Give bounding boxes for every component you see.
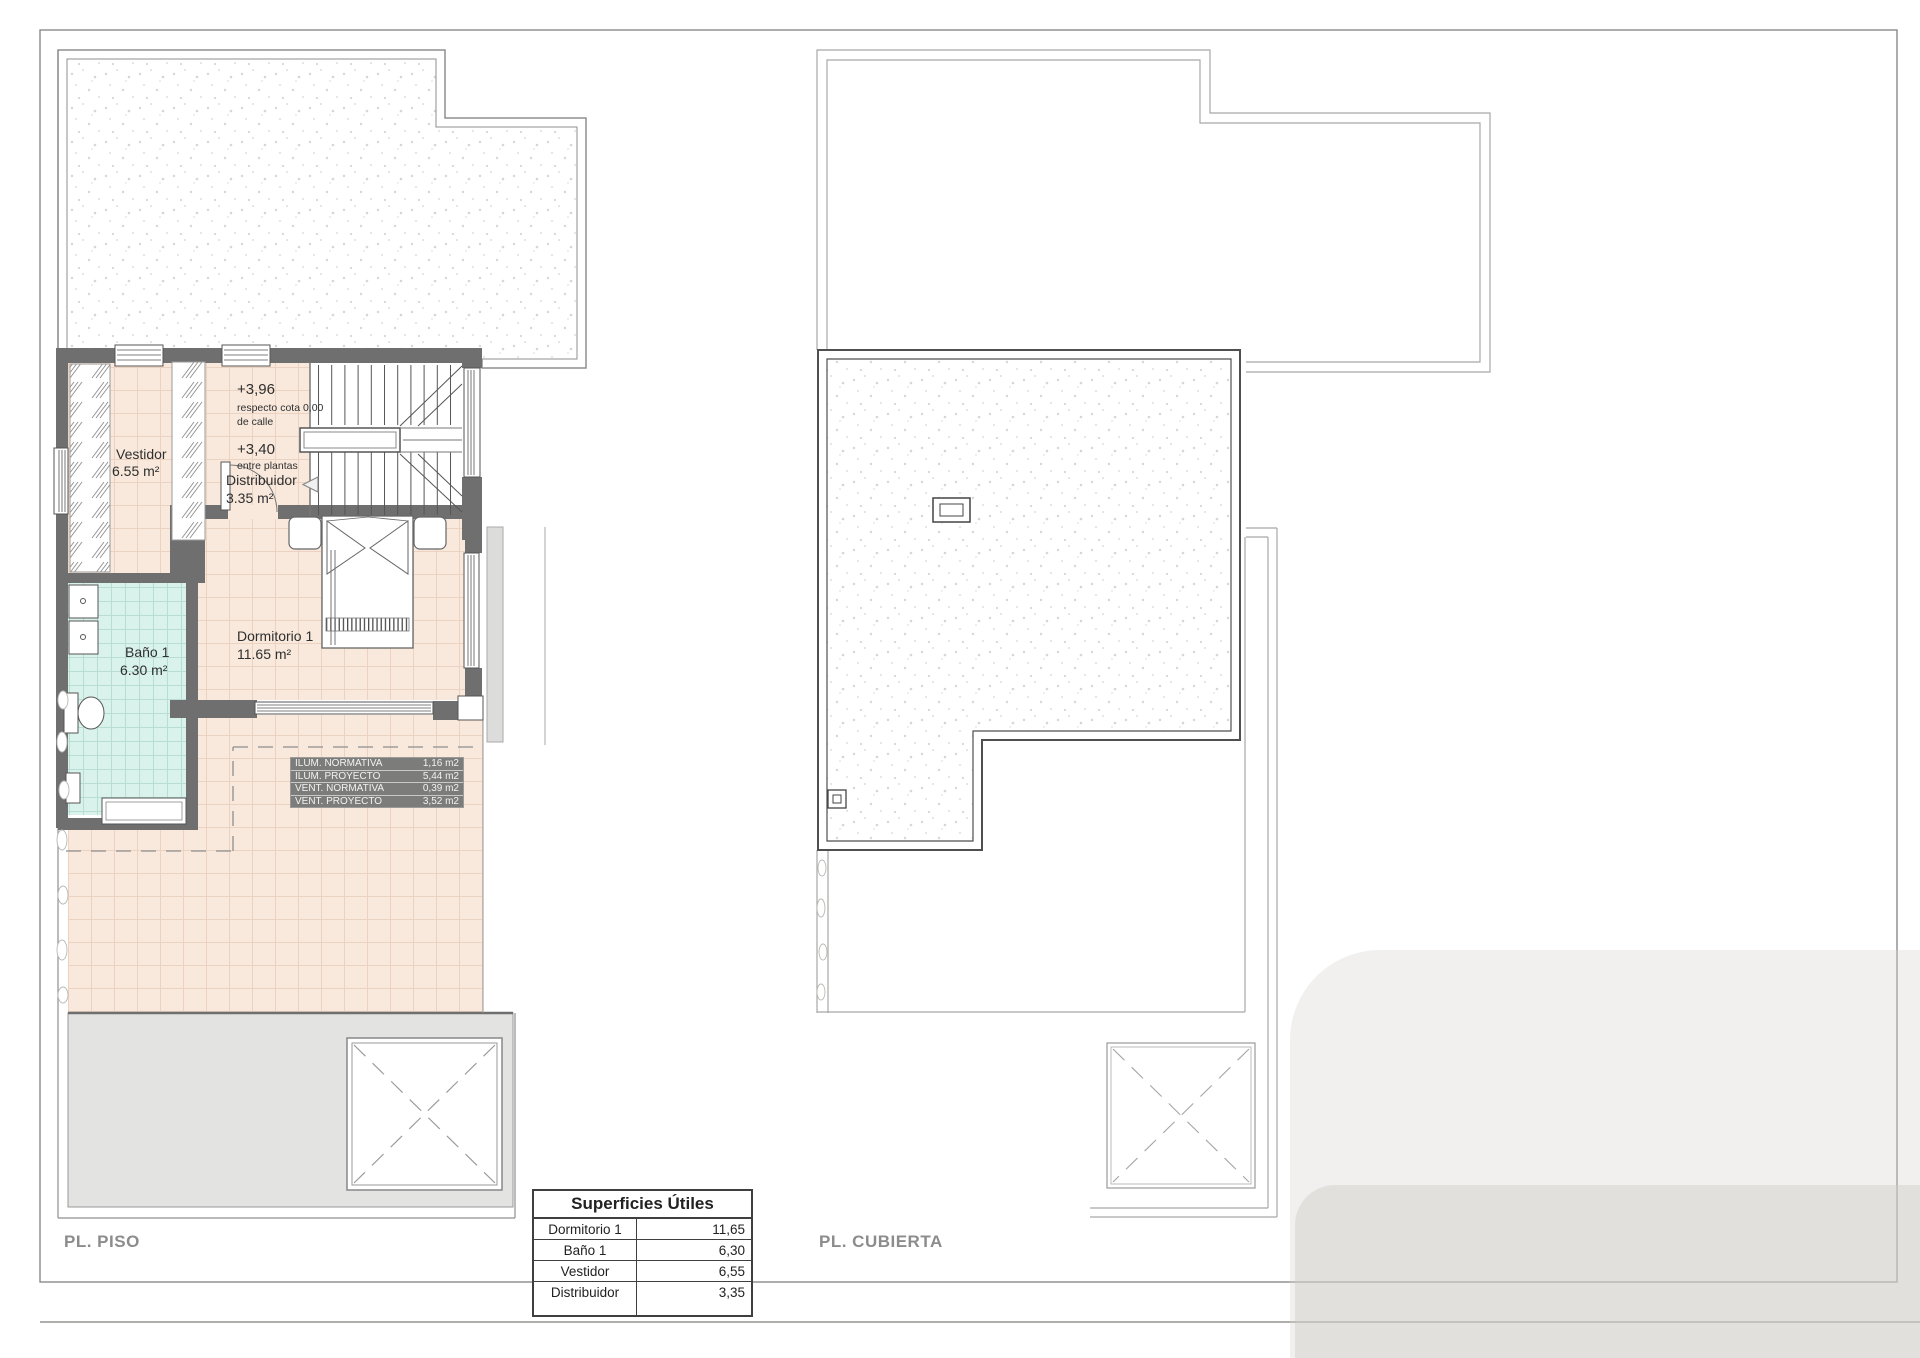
corner-block (458, 696, 483, 720)
pebble-strip (817, 860, 827, 1000)
wall-pillar-e (462, 477, 482, 540)
room-name-cell: Baño 1 (534, 1240, 637, 1260)
room-name-cell: Distribuidor (534, 1282, 637, 1315)
closet-icon (70, 364, 110, 572)
plan-piso (54, 50, 586, 1218)
nightstand-icon (289, 517, 321, 549)
room-name-cell: Dormitorio 1 (534, 1219, 637, 1239)
superficies-utiles-table: Superficies Útiles Dormitorio 1 11,65 Ba… (532, 1189, 753, 1317)
vent-row-value: 0,39 m2 (423, 783, 459, 794)
bathtub-icon (102, 798, 186, 824)
level-upper-note1: respecto cota 0,00 (237, 402, 323, 414)
vestidor-area-label: 6.55 m² (112, 463, 159, 479)
skylight-crossed-box-icon (1107, 1043, 1255, 1188)
skylight-crossed-box-icon (347, 1038, 502, 1190)
window-top-2 (222, 345, 270, 366)
cubierta-roof-block (818, 350, 1240, 850)
nightstand-icon (414, 517, 446, 549)
wall-bedroom-bottom (170, 700, 257, 718)
exterior-ledge (487, 527, 503, 742)
wall-bath-top (58, 573, 188, 583)
sink-icon (69, 585, 98, 618)
distribuidor-name-label: Distribuidor (226, 472, 297, 488)
vent-row-value: 1,16 m2 (423, 758, 459, 769)
drawing-sheet: Vestidor 6.55 m² +3,96 respecto cota 0,0… (0, 0, 1920, 1358)
piso-ground-area (68, 1013, 513, 1207)
dormitorio-area-label: 11.65 m² (237, 646, 291, 662)
door-opening (228, 505, 278, 519)
stair-treads-up (318, 365, 462, 425)
table-row: ILUM. NORMATIVA 1,16 m2 (291, 758, 463, 771)
vent-row-value: 3,52 m2 (423, 796, 459, 807)
scan-artifact (1295, 1185, 1920, 1358)
table-row: Distribuidor 3,35 (534, 1282, 751, 1315)
table-row: Dormitorio 1 11,65 (534, 1219, 751, 1240)
closet-icon (172, 362, 205, 540)
vent-row-label: ILUM. PROYECTO (295, 771, 380, 782)
level-mid-value: +3,40 (237, 441, 275, 458)
table-row: ILUM. PROYECTO 5,44 m2 (291, 771, 463, 784)
table-title: Superficies Útiles (534, 1191, 751, 1219)
window-bedroom-south (255, 702, 433, 714)
table-row: Vestidor 6,55 (534, 1261, 751, 1282)
vestidor-name-label: Vestidor (116, 446, 167, 462)
bed-foot-band (326, 618, 409, 631)
window-left (54, 448, 68, 514)
room-area-cell: 3,35 (637, 1282, 751, 1315)
stair-treads-down (318, 452, 462, 515)
level-upper-note2: de calle (237, 416, 273, 428)
plan-cubierta-title: PL. CUBIERTA (819, 1232, 943, 1252)
table-row: Baño 1 6,30 (534, 1240, 751, 1261)
piso-roof-area (58, 50, 586, 368)
bano-name-label: Baño 1 (125, 644, 169, 660)
room-area-cell: 11,65 (637, 1219, 751, 1239)
room-name-cell: Vestidor (534, 1261, 637, 1281)
chimney-icon (933, 498, 970, 522)
table-row: VENT. PROYECTO 3,52 m2 (291, 796, 463, 808)
drain-icon (828, 790, 846, 808)
vent-ilum-table: ILUM. NORMATIVA 1,16 m2 ILUM. PROYECTO 5… (290, 757, 464, 808)
room-area-cell: 6,30 (637, 1240, 751, 1260)
level-mid-note1: entre plantas (237, 460, 298, 472)
sink-icon (69, 621, 98, 654)
distribuidor-area-label: 3.35 m² (226, 490, 273, 506)
cubierta-outline (817, 50, 1490, 372)
vent-row-label: VENT. PROYECTO (295, 796, 382, 807)
vent-row-label: VENT. NORMATIVA (295, 783, 384, 794)
wall-bedroom-bottom-e (433, 701, 459, 720)
table-row: VENT. NORMATIVA 0,39 m2 (291, 783, 463, 796)
plan-piso-title: PL. PISO (64, 1232, 140, 1252)
window-bedroom-east (464, 553, 479, 668)
wall-pillar-e2 (465, 540, 482, 553)
toilet-icon (64, 693, 104, 733)
dormitorio-name-label: Dormitorio 1 (237, 628, 313, 644)
vent-row-label: ILUM. NORMATIVA (295, 758, 382, 769)
bano-area-label: 6.30 m² (120, 662, 167, 678)
wall-pillar-ne (462, 348, 482, 368)
wall-left (56, 348, 68, 828)
vent-row-value: 5,44 m2 (423, 771, 459, 782)
window-stairs-east (464, 368, 480, 477)
window-top-1 (115, 345, 163, 366)
level-upper-value: +3,96 (237, 381, 275, 398)
room-area-cell: 6,55 (637, 1261, 751, 1281)
